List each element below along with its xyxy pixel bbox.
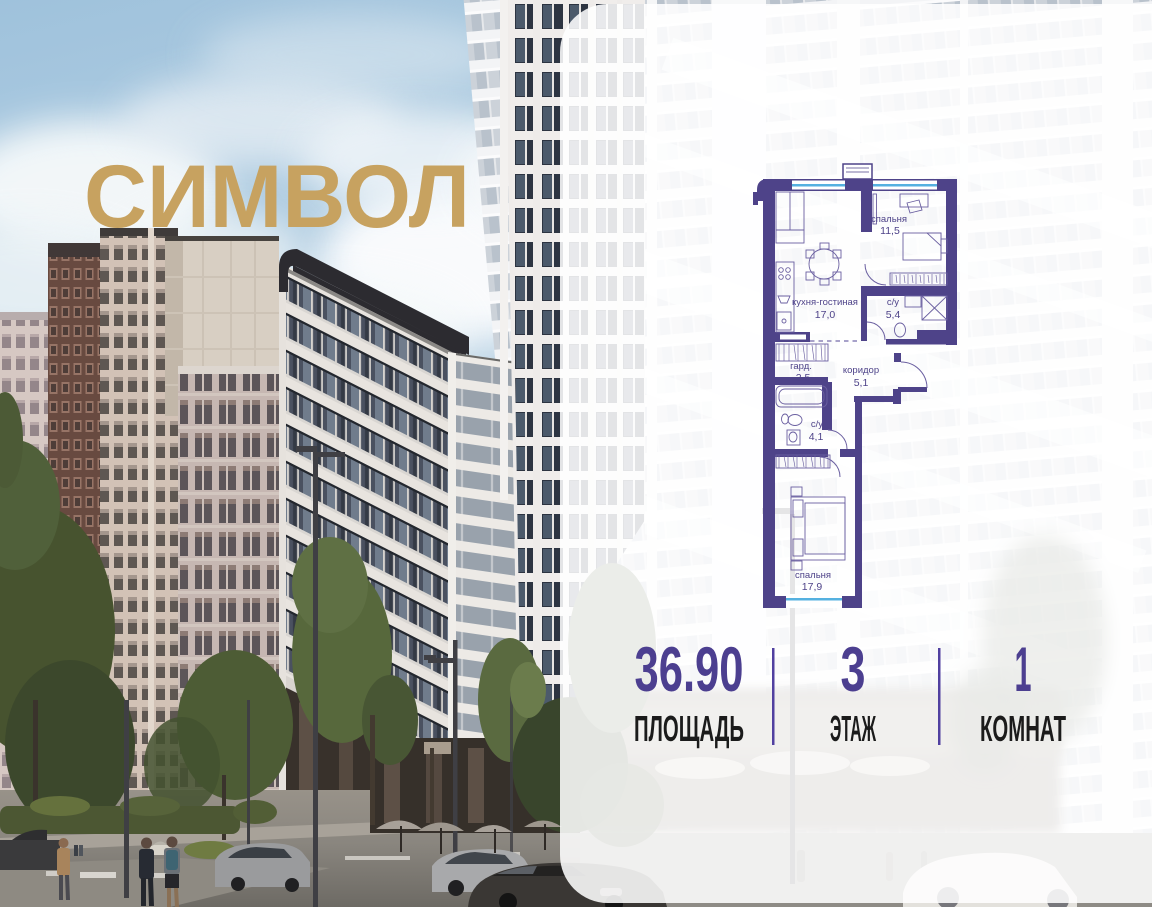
- svg-text:коридор: коридор: [843, 365, 879, 376]
- svg-text:5,1: 5,1: [854, 377, 869, 389]
- svg-text:36.90: 36.90: [635, 635, 744, 705]
- svg-text:с/у: с/у: [887, 297, 899, 308]
- svg-text:ПЛОЩАДЬ: ПЛОЩАДЬ: [634, 708, 744, 749]
- svg-text:спальня: спальня: [795, 570, 831, 581]
- svg-text:спальня: спальня: [871, 214, 907, 225]
- svg-text:кухня-гостиная: кухня-гостиная: [792, 297, 858, 308]
- svg-text:3: 3: [841, 635, 866, 705]
- svg-text:ЭТАЖ: ЭТАЖ: [830, 708, 876, 749]
- svg-text:1: 1: [1015, 635, 1032, 705]
- svg-text:гард.: гард.: [790, 361, 812, 372]
- svg-text:17,9: 17,9: [802, 581, 823, 593]
- svg-text:4,1: 4,1: [809, 431, 824, 443]
- svg-text:с/у: с/у: [811, 419, 823, 430]
- svg-text:2,5: 2,5: [796, 372, 811, 384]
- svg-text:5,4: 5,4: [886, 309, 901, 321]
- svg-text:17,0: 17,0: [815, 309, 836, 321]
- svg-text:КОМНАТ: КОМНАТ: [980, 708, 1066, 749]
- svg-text:11,5: 11,5: [880, 225, 900, 237]
